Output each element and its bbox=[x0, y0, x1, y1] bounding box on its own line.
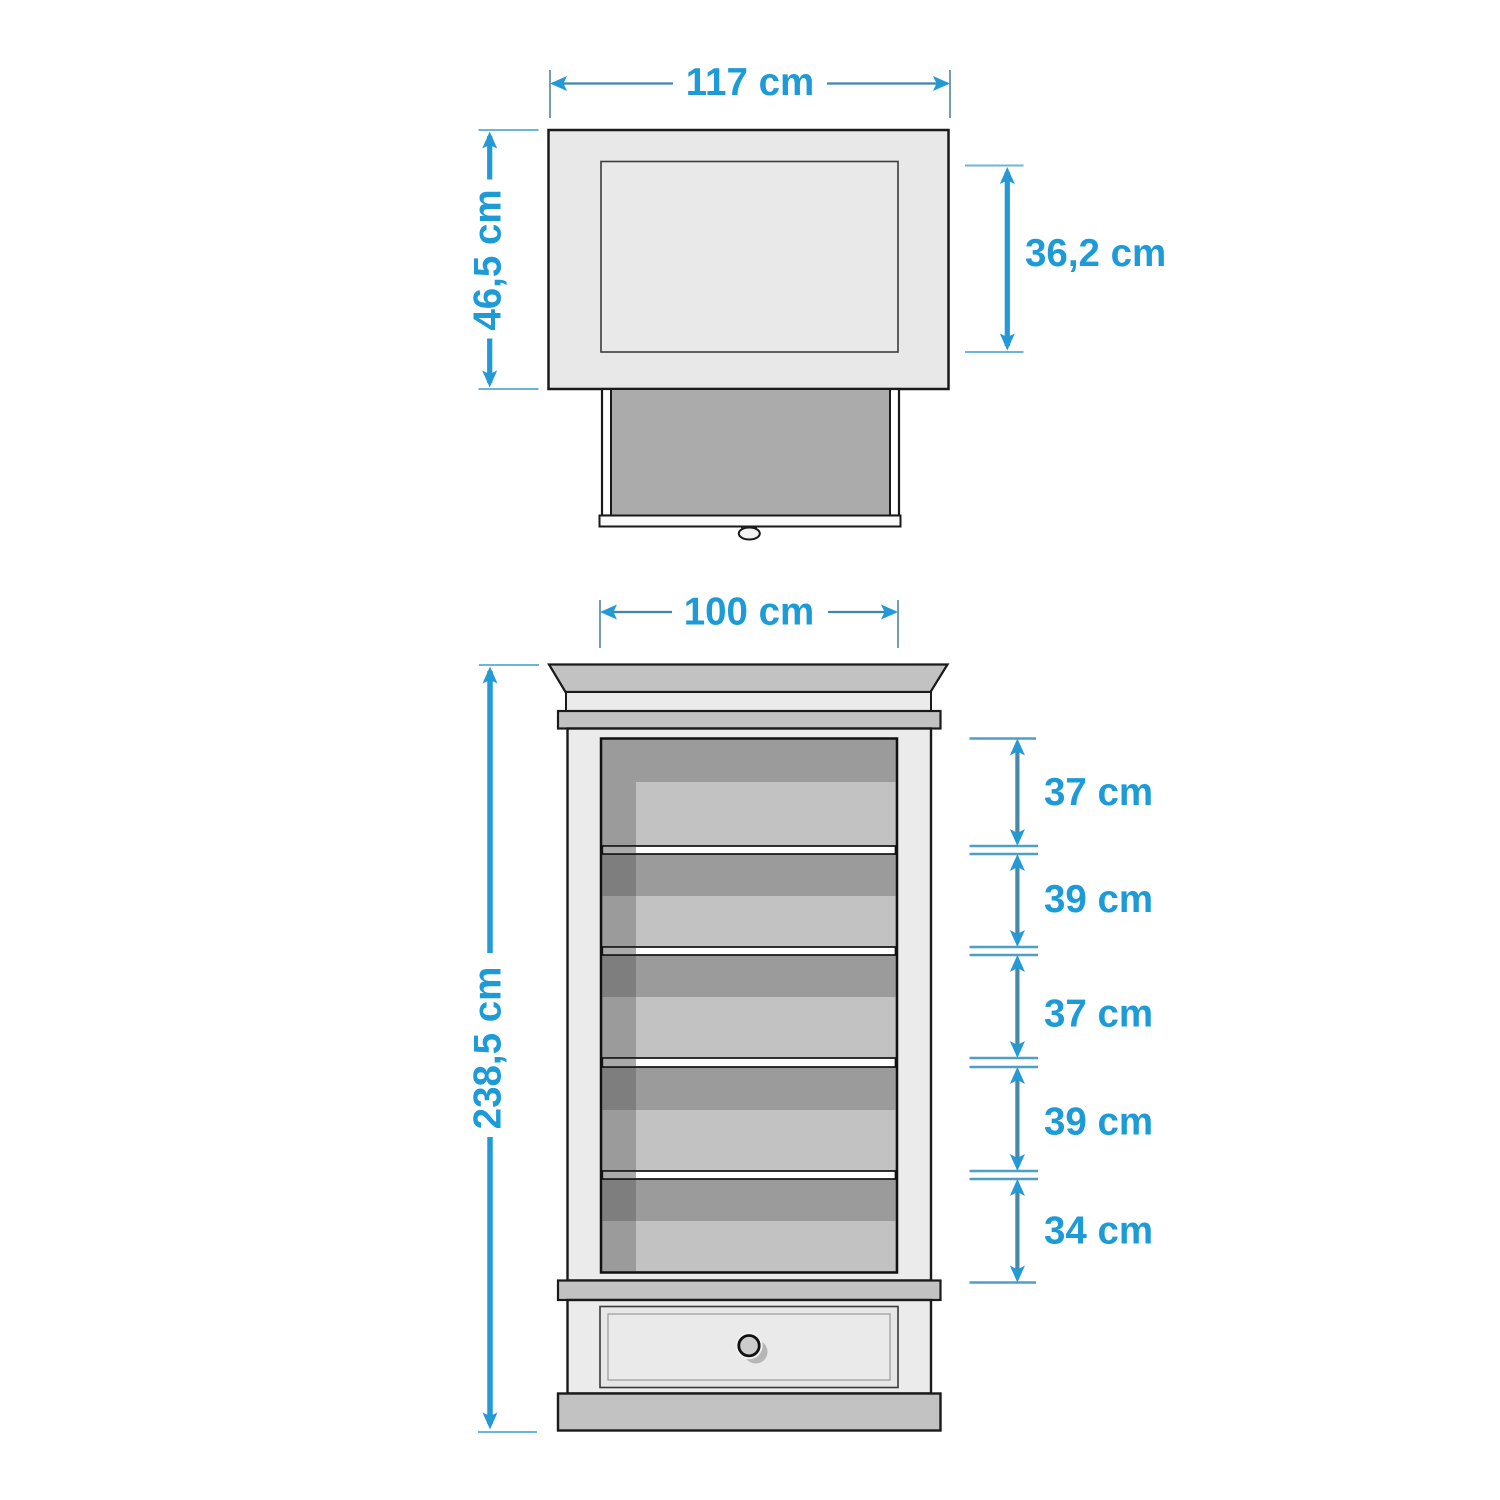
svg-text:39 cm: 39 cm bbox=[1044, 1101, 1153, 1144]
svg-text:117 cm: 117 cm bbox=[686, 61, 814, 104]
svg-text:37 cm: 37 cm bbox=[1044, 771, 1153, 814]
svg-text:34 cm: 34 cm bbox=[1044, 1210, 1153, 1253]
svg-text:36,2 cm: 36,2 cm bbox=[1025, 232, 1166, 275]
svg-text:100 cm: 100 cm bbox=[684, 591, 815, 634]
svg-text:39 cm: 39 cm bbox=[1044, 878, 1153, 921]
svg-text:46,5 cm: 46,5 cm bbox=[467, 189, 510, 330]
svg-text:238,5 cm: 238,5 cm bbox=[467, 967, 510, 1130]
svg-text:37 cm: 37 cm bbox=[1044, 993, 1153, 1036]
